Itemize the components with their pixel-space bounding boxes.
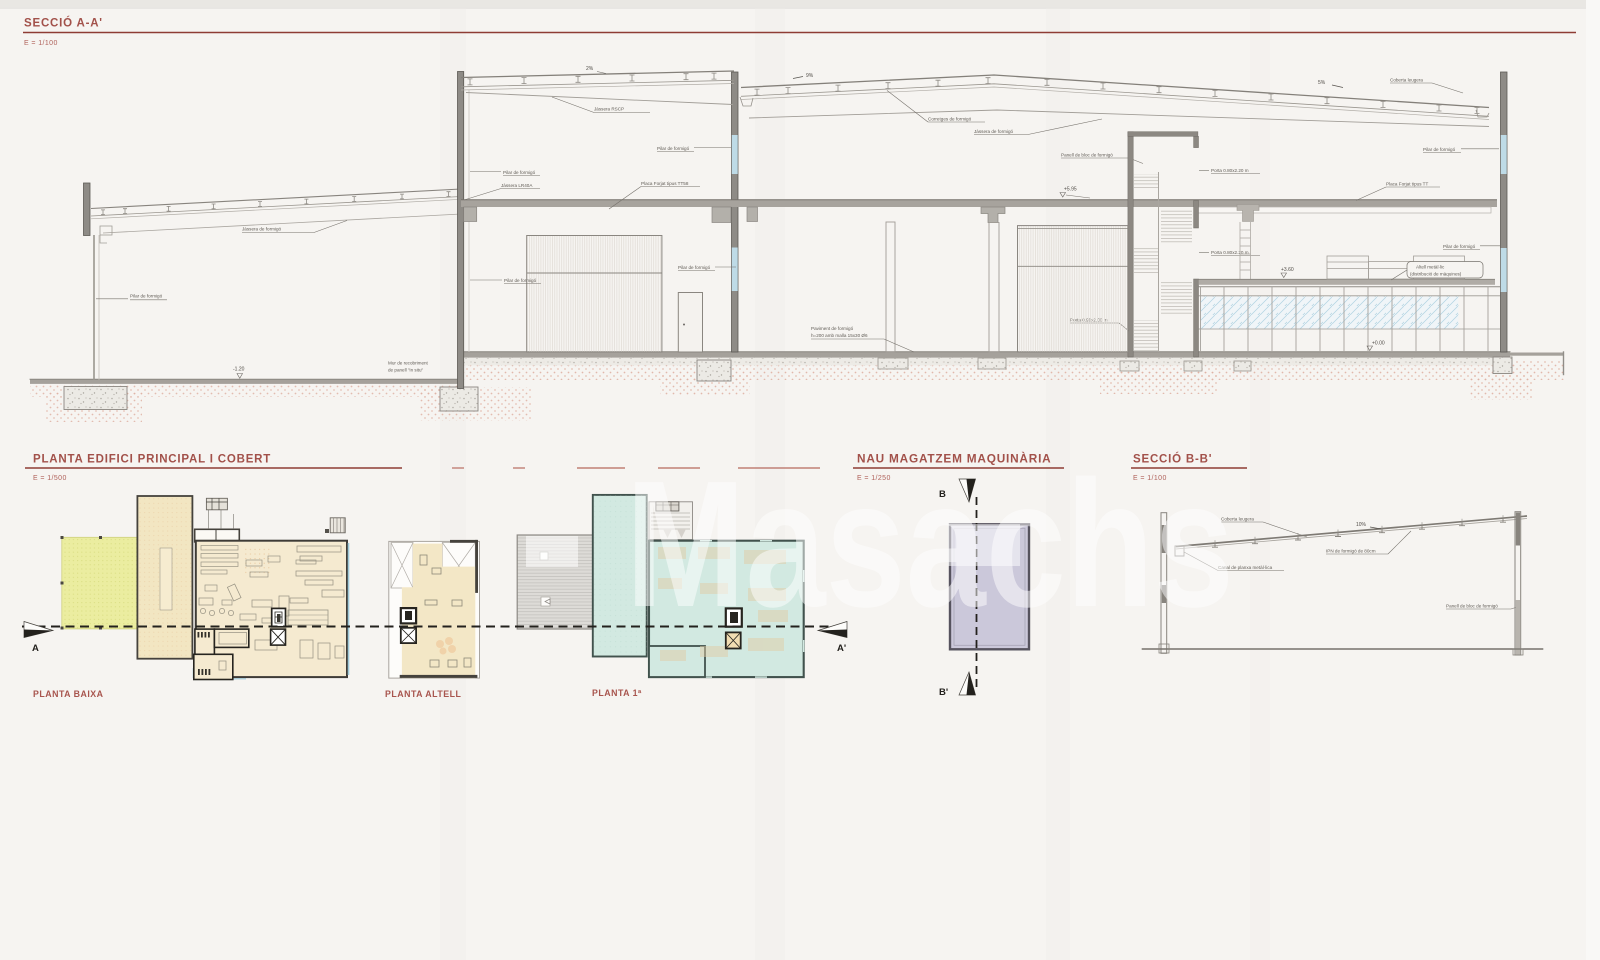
svg-text:PLANTA EDIFICI PRINCIPAL I COB: PLANTA EDIFICI PRINCIPAL I COBERT (33, 454, 271, 466)
svg-text:+3.60: +3.60 (1281, 267, 1294, 273)
svg-text:Pilar de formigó: Pilar de formigó (130, 294, 163, 299)
svg-text:PLANTA ALTELL: PLANTA ALTELL (385, 689, 461, 699)
svg-text:5%: 5% (1318, 80, 1326, 86)
svg-text:(distribució de màquines): (distribució de màquines) (1410, 272, 1462, 277)
svg-text:Mur de recobriment: Mur de recobriment (388, 361, 429, 366)
svg-text:Pilar de formigó: Pilar de formigó (503, 170, 536, 175)
svg-text:A: A (32, 643, 39, 654)
svg-text:Panell de bloc de formigó: Panell de bloc de formigó (1446, 604, 1498, 609)
svg-text:PLANTA 1ª: PLANTA 1ª (592, 688, 642, 698)
svg-text:Pilar de formigó: Pilar de formigó (504, 278, 537, 283)
svg-text:9%: 9% (806, 73, 814, 79)
svg-text:Corretges de formigó: Corretges de formigó (928, 117, 972, 122)
svg-text:Altell metàl·lic: Altell metàl·lic (1416, 265, 1445, 270)
svg-text:E = 1/100: E = 1/100 (24, 40, 58, 47)
svg-text:B': B' (939, 687, 948, 698)
svg-text:Jàssera de formigó: Jàssera de formigó (242, 227, 282, 232)
svg-text:E = 1/500: E = 1/500 (33, 475, 67, 482)
svg-text:Placa Forjat tipus TT: Placa Forjat tipus TT (1386, 182, 1428, 187)
svg-text:Pilar de formigó: Pilar de formigó (1443, 244, 1476, 249)
svg-text:Coberta leugera: Coberta leugera (1390, 78, 1423, 83)
svg-text:-1.20: -1.20 (233, 367, 245, 373)
svg-text:SECCIÓ A-A': SECCIÓ A-A' (24, 17, 103, 30)
svg-text:10%: 10% (1356, 522, 1367, 528)
svg-text:IPN de formigó de 80cm: IPN de formigó de 80cm (1326, 549, 1376, 554)
svg-text:+0.00: +0.00 (1372, 341, 1385, 347)
svg-text:Paviment de formigó: Paviment de formigó (811, 326, 854, 331)
svg-text:Masachs: Masachs (626, 443, 1234, 645)
svg-text:Panell de bloc de formigó: Panell de bloc de formigó (1061, 153, 1113, 158)
svg-text:Pilar de formigó: Pilar de formigó (657, 146, 690, 151)
svg-text:2%: 2% (586, 66, 594, 72)
svg-text:+5.95: +5.95 (1064, 187, 1077, 193)
svg-text:Porta 0.80x2.20 m: Porta 0.80x2.20 m (1211, 168, 1249, 173)
svg-text:Pilar de formigó: Pilar de formigó (1423, 147, 1456, 152)
svg-text:Jàssera de formigó: Jàssera de formigó (974, 129, 1014, 134)
svg-text:Jàssera RSCP: Jàssera RSCP (594, 107, 624, 112)
svg-text:h=200 amb malla 15x30 Ø6: h=200 amb malla 15x30 Ø6 (811, 333, 868, 338)
svg-text:Jàssera LR40A: Jàssera LR40A (501, 183, 533, 188)
svg-text:Pilar de formigó: Pilar de formigó (678, 265, 711, 270)
svg-text:PLANTA BAIXA: PLANTA BAIXA (33, 689, 104, 699)
svg-text:Placa Forjat tipus TT58: Placa Forjat tipus TT58 (641, 181, 689, 186)
svg-text:de panell "in situ": de panell "in situ" (388, 368, 424, 373)
